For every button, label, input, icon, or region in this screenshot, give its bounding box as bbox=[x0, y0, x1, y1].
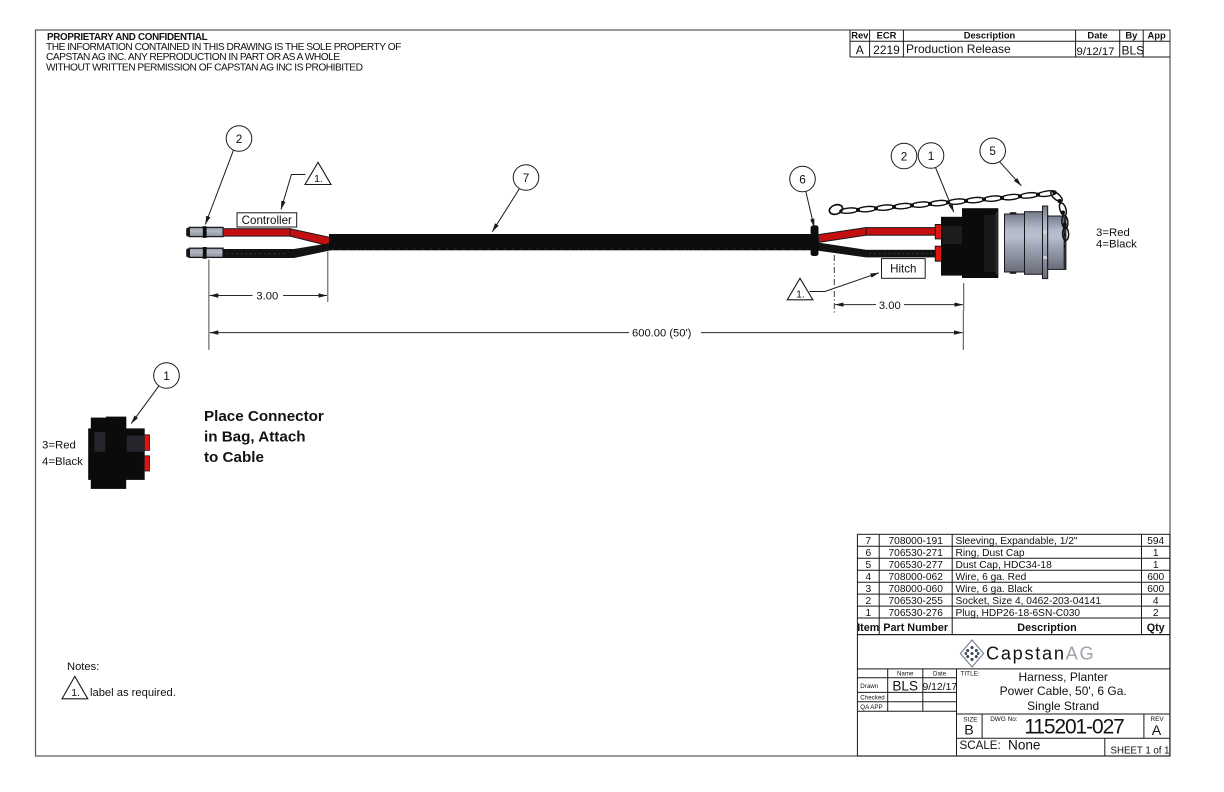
svg-text:1: 1 bbox=[1153, 560, 1159, 571]
svg-text:label as required.: label as required. bbox=[90, 687, 176, 699]
svg-text:App: App bbox=[1147, 30, 1165, 41]
svg-text:706530-255: 706530-255 bbox=[889, 596, 944, 607]
svg-text:2: 2 bbox=[901, 149, 908, 163]
svg-text:594: 594 bbox=[1147, 536, 1164, 547]
svg-text:A: A bbox=[856, 43, 864, 57]
svg-text:WITHOUT WRITTEN PERMISSION OF: WITHOUT WRITTEN PERMISSION OF CAPSTAN AG… bbox=[46, 62, 363, 73]
svg-text:7: 7 bbox=[523, 171, 530, 185]
svg-text:in Bag, Attach: in Bag, Attach bbox=[204, 428, 306, 445]
svg-text:600: 600 bbox=[1147, 584, 1164, 595]
svg-text:Item: Item bbox=[857, 622, 879, 634]
svg-text:115201-027: 115201-027 bbox=[1024, 716, 1124, 739]
svg-text:Plug, HDP26-18-6SN-C030: Plug, HDP26-18-6SN-C030 bbox=[956, 608, 1081, 619]
svg-text:1.: 1. bbox=[796, 289, 805, 300]
svg-text:1: 1 bbox=[163, 369, 170, 383]
svg-text:Part Number: Part Number bbox=[883, 622, 949, 634]
svg-text:Socket, Size 4, 0462-203-04141: Socket, Size 4, 0462-203-04141 bbox=[956, 596, 1102, 607]
svg-text:Place Connector: Place Connector bbox=[204, 408, 324, 425]
svg-text:708000-060: 708000-060 bbox=[889, 584, 944, 595]
svg-text:2: 2 bbox=[865, 596, 871, 607]
svg-text:SHEET 1 of 1: SHEET 1 of 1 bbox=[1111, 745, 1170, 756]
svg-text:4: 4 bbox=[1153, 596, 1159, 607]
svg-text:600.00 (50'): 600.00 (50') bbox=[632, 328, 692, 340]
svg-text:5: 5 bbox=[989, 144, 996, 158]
svg-text:Controller: Controller bbox=[242, 214, 292, 227]
svg-text:to Cable: to Cable bbox=[204, 449, 264, 466]
svg-text:SCALE:: SCALE: bbox=[960, 739, 1001, 752]
svg-text:3.00: 3.00 bbox=[256, 291, 278, 303]
svg-text:9/12/17: 9/12/17 bbox=[1077, 46, 1115, 58]
svg-text:DWG No:: DWG No: bbox=[990, 716, 1018, 723]
svg-text:B: B bbox=[964, 723, 973, 739]
svg-text:706530-277: 706530-277 bbox=[889, 560, 944, 571]
svg-text:3.00: 3.00 bbox=[879, 300, 901, 312]
svg-text:Hitch: Hitch bbox=[890, 263, 916, 276]
svg-text:Power Cable, 50', 6 Ga.: Power Cable, 50', 6 Ga. bbox=[1000, 684, 1127, 698]
svg-text:BLS: BLS bbox=[1122, 44, 1145, 58]
svg-text:2219: 2219 bbox=[873, 43, 900, 57]
svg-text:Qty: Qty bbox=[1147, 622, 1165, 634]
svg-text:Sleeving, Expandable, 1/2": Sleeving, Expandable, 1/2" bbox=[956, 536, 1078, 547]
svg-text:6: 6 bbox=[865, 548, 871, 559]
svg-text:1.: 1. bbox=[71, 688, 80, 699]
svg-text:3=Red: 3=Red bbox=[42, 439, 76, 451]
svg-text:Description: Description bbox=[964, 30, 1016, 41]
svg-text:9/12/17: 9/12/17 bbox=[922, 682, 957, 693]
svg-text:Wire, 6 ga. Black: Wire, 6 ga. Black bbox=[956, 584, 1034, 595]
svg-text:Rev: Rev bbox=[851, 30, 869, 41]
svg-text:6: 6 bbox=[799, 172, 806, 186]
svg-text:None: None bbox=[1008, 738, 1041, 753]
svg-text:BLS: BLS bbox=[892, 678, 918, 693]
svg-text:3: 3 bbox=[865, 584, 871, 595]
svg-text:Notes:: Notes: bbox=[67, 661, 99, 673]
svg-text:708000-062: 708000-062 bbox=[889, 572, 944, 583]
svg-text:Date: Date bbox=[1087, 30, 1107, 41]
svg-text:Single Strand: Single Strand bbox=[1027, 699, 1099, 713]
svg-text:By: By bbox=[1125, 30, 1138, 41]
svg-text:5: 5 bbox=[865, 560, 871, 571]
svg-text:CapstanAG: CapstanAG bbox=[986, 644, 1095, 664]
svg-text:Wire, 6 ga. Red: Wire, 6 ga. Red bbox=[956, 572, 1027, 583]
svg-text:600: 600 bbox=[1147, 572, 1164, 583]
svg-text:706530-276: 706530-276 bbox=[889, 608, 944, 619]
svg-text:ECR: ECR bbox=[877, 30, 897, 41]
svg-text:Description: Description bbox=[1017, 622, 1076, 634]
svg-text:1: 1 bbox=[1153, 548, 1159, 559]
svg-text:Dust Cap, HDC34-18: Dust Cap, HDC34-18 bbox=[956, 560, 1053, 571]
svg-text:Date: Date bbox=[933, 670, 947, 677]
svg-text:Harness, Planter: Harness, Planter bbox=[1019, 670, 1108, 684]
svg-text:708000-191: 708000-191 bbox=[889, 536, 944, 547]
svg-text:Production Release: Production Release bbox=[906, 42, 1011, 56]
svg-text:2: 2 bbox=[1153, 608, 1159, 619]
svg-text:706530-271: 706530-271 bbox=[889, 548, 944, 559]
svg-text:TITLE:: TITLE: bbox=[961, 671, 980, 678]
svg-text:Name: Name bbox=[897, 670, 914, 677]
svg-text:3=Red: 3=Red bbox=[1096, 227, 1130, 239]
svg-text:1: 1 bbox=[865, 608, 871, 619]
svg-text:A: A bbox=[1152, 723, 1162, 739]
svg-text:4=Black: 4=Black bbox=[42, 456, 83, 468]
svg-text:4: 4 bbox=[865, 572, 871, 583]
svg-text:QA APP: QA APP bbox=[860, 704, 882, 711]
svg-text:4=Black: 4=Black bbox=[1096, 239, 1137, 251]
svg-text:Checked: Checked bbox=[860, 694, 885, 701]
svg-text:Ring, Dust Cap: Ring, Dust Cap bbox=[956, 548, 1025, 559]
svg-text:7: 7 bbox=[865, 536, 871, 547]
svg-text:Drawn: Drawn bbox=[860, 683, 878, 690]
svg-text:2: 2 bbox=[236, 132, 243, 146]
svg-text:1: 1 bbox=[928, 149, 935, 163]
svg-text:1.: 1. bbox=[314, 174, 323, 185]
